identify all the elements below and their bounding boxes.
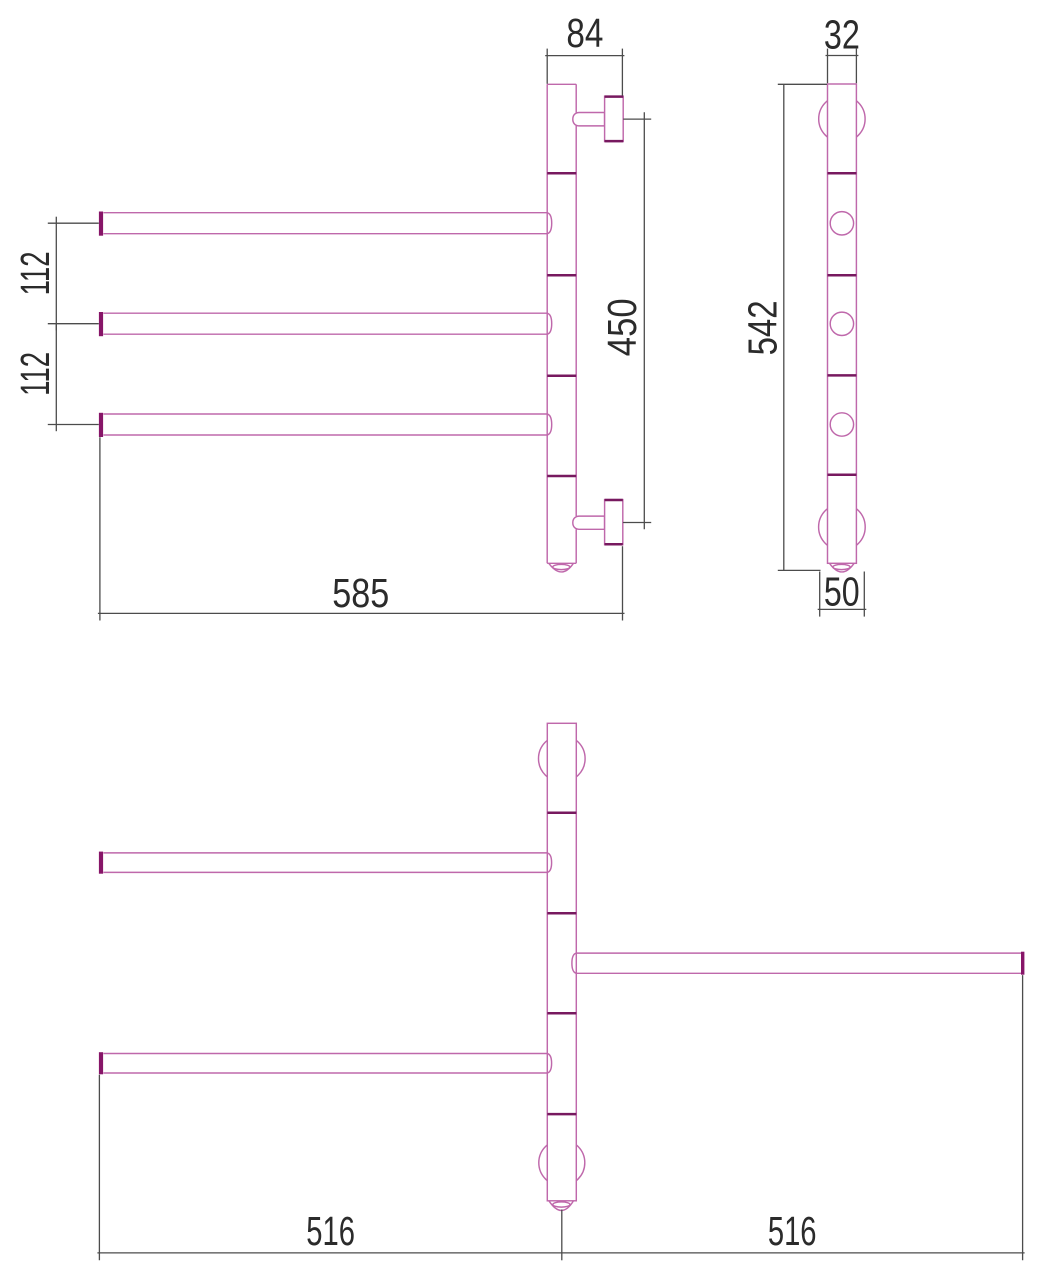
svg-text:450: 450 xyxy=(599,298,645,356)
svg-text:112: 112 xyxy=(12,352,58,396)
svg-text:32: 32 xyxy=(824,12,860,58)
svg-text:50: 50 xyxy=(824,568,860,614)
svg-text:585: 585 xyxy=(332,570,389,616)
svg-text:84: 84 xyxy=(566,10,603,56)
svg-text:112: 112 xyxy=(12,251,58,295)
svg-text:516: 516 xyxy=(768,1208,817,1254)
svg-text:542: 542 xyxy=(740,300,786,355)
svg-text:516: 516 xyxy=(306,1208,355,1254)
